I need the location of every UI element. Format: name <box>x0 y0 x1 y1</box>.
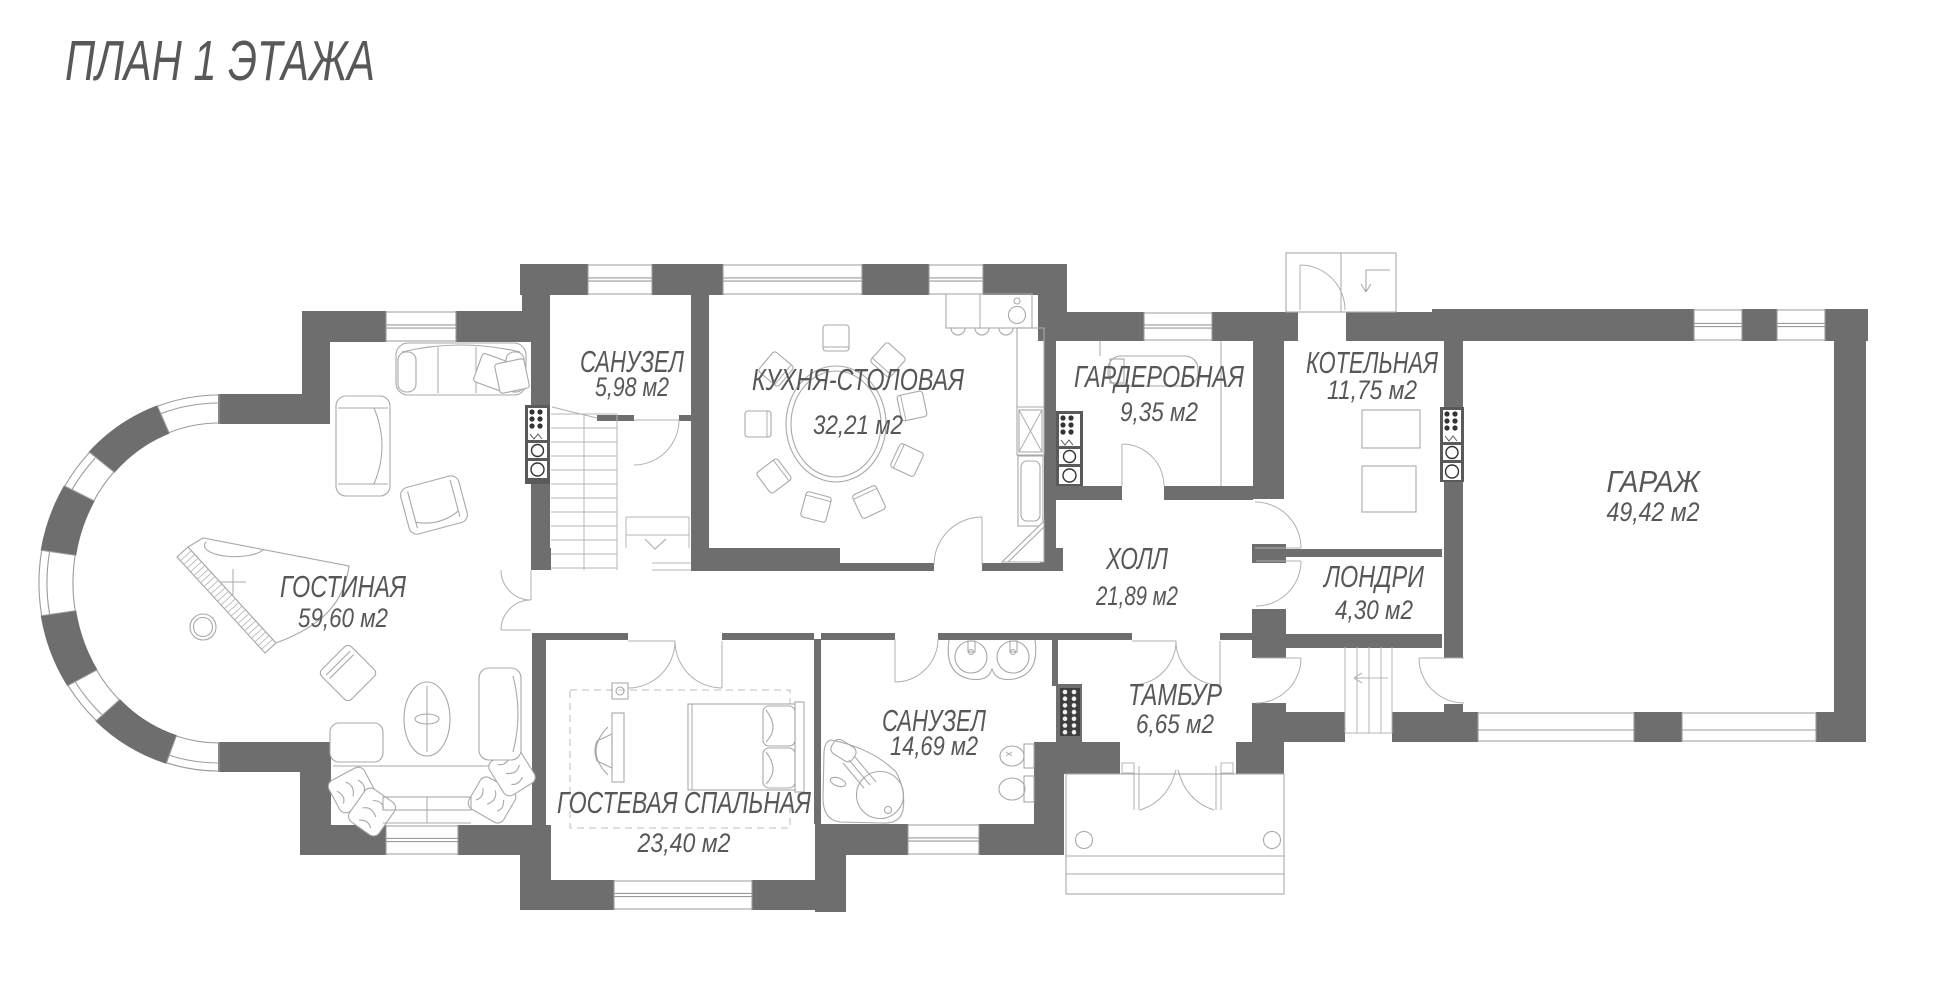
svg-text:КУХНЯ-СТОЛОВАЯ: КУХНЯ-СТОЛОВАЯ <box>752 362 965 397</box>
svg-text:59,60 м2: 59,60 м2 <box>298 603 388 633</box>
svg-text:9,35 м2: 9,35 м2 <box>1120 397 1198 427</box>
svg-text:ГАРАЖ: ГАРАЖ <box>1607 464 1701 499</box>
svg-text:11,75 м2: 11,75 м2 <box>1327 375 1417 405</box>
svg-text:6,65 м2: 6,65 м2 <box>1136 709 1214 739</box>
svg-text:ЛОНДРИ: ЛОНДРИ <box>1322 559 1424 594</box>
svg-text:ГОСТИНАЯ: ГОСТИНАЯ <box>280 569 407 604</box>
svg-text:ХОЛЛ: ХОЛЛ <box>1105 541 1168 576</box>
svg-text:4,30 м2: 4,30 м2 <box>1335 595 1413 625</box>
svg-text:14,69 м2: 14,69 м2 <box>890 731 978 761</box>
svg-text:ГОСТЕВАЯ СПАЛЬНАЯ: ГОСТЕВАЯ СПАЛЬНАЯ <box>557 785 812 820</box>
svg-text:5,98 м2: 5,98 м2 <box>595 372 669 402</box>
svg-text:21,89 м2: 21,89 м2 <box>1095 581 1178 611</box>
svg-text:23,40 м2: 23,40 м2 <box>637 828 731 858</box>
svg-text:ПЛАН 1 ЭТАЖА: ПЛАН 1 ЭТАЖА <box>65 29 375 93</box>
svg-text:ГАРДЕРОБНАЯ: ГАРДЕРОБНАЯ <box>1074 359 1245 394</box>
svg-text:32,21 м2: 32,21 м2 <box>813 410 903 440</box>
svg-text:ТАМБУР: ТАМБУР <box>1128 677 1222 712</box>
svg-text:49,42 м2: 49,42 м2 <box>1607 497 1700 527</box>
